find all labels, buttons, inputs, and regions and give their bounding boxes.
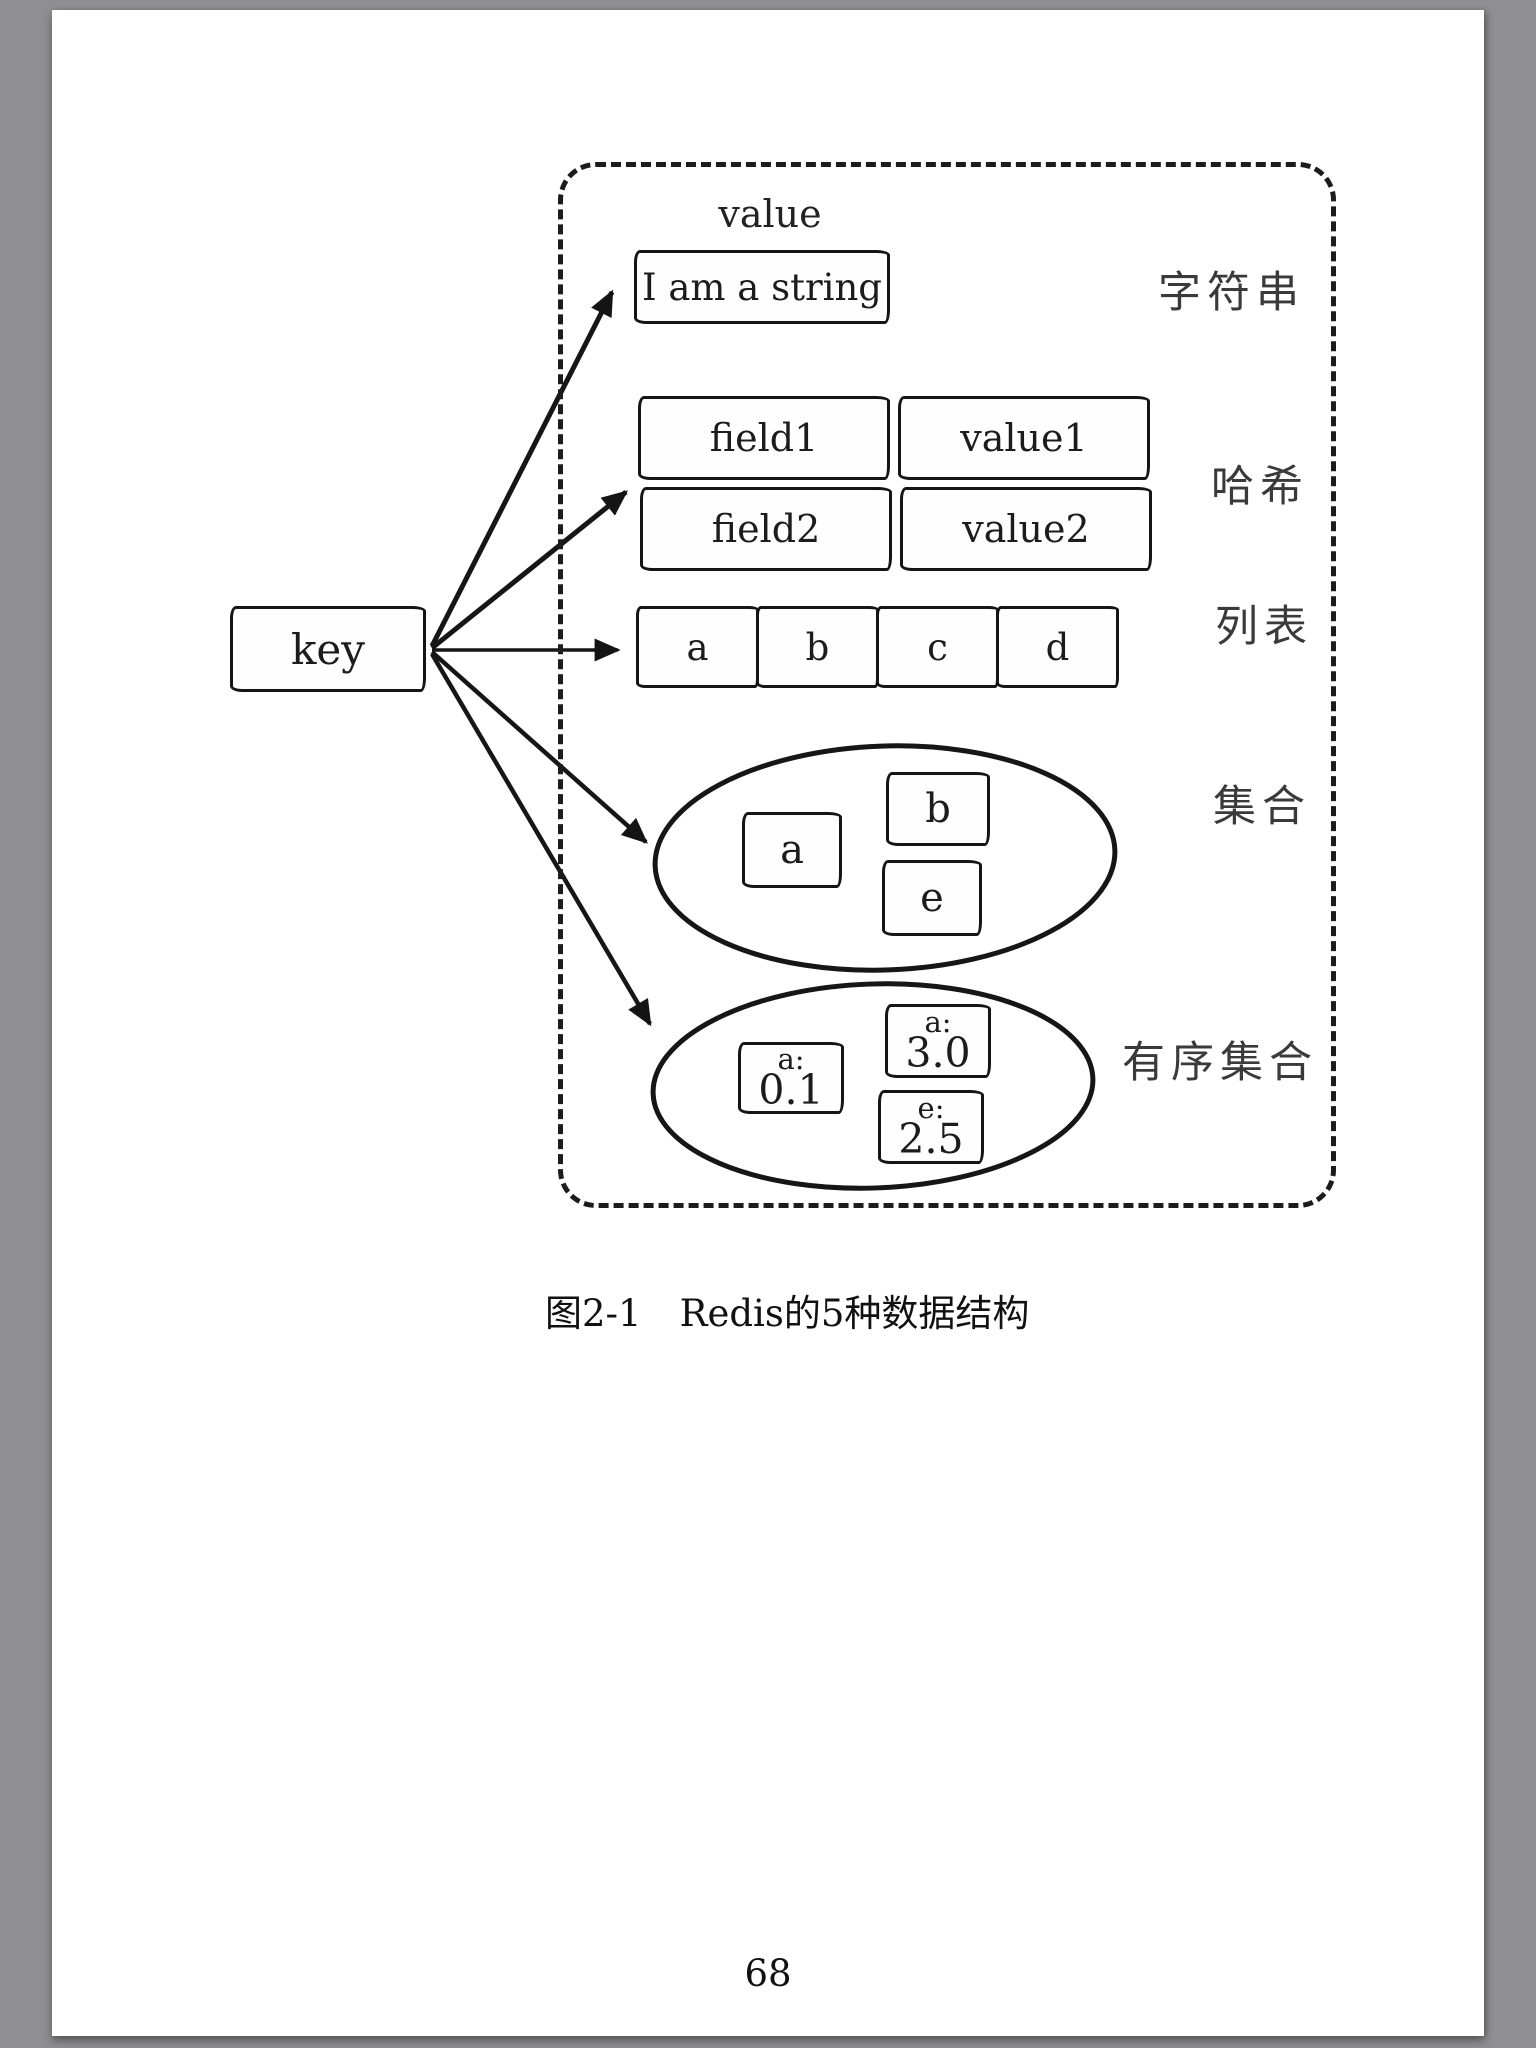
list-cell-b: b <box>756 606 879 688</box>
zset-member-a30-box: a: 3.0 <box>885 1004 991 1078</box>
list-cell-d: d <box>996 606 1119 688</box>
zset-member-a01-box: a: 0.1 <box>738 1042 844 1114</box>
hash-value2-box: value2 <box>900 487 1152 571</box>
label-string-type: 字符串 <box>1158 258 1305 320</box>
page-number: 68 <box>0 1952 1536 1995</box>
set-member-b-box: b <box>886 772 990 846</box>
label-set-type: 集合 <box>1213 772 1311 834</box>
figure-caption-number: 图2-1 <box>545 1292 642 1335</box>
reader-viewport: value key I am a string field1 value1 fi… <box>0 0 1536 2048</box>
zset-score-label: 2.5 <box>898 1121 963 1159</box>
hash-value1-box: value1 <box>898 396 1150 480</box>
label-sorted-set-type: 有序集合 <box>1122 1028 1318 1090</box>
figure-caption: 图2-1Redis的5种数据结构 <box>545 1283 1029 1337</box>
label-list-type: 列表 <box>1215 592 1313 654</box>
set-member-a-box: a <box>742 812 842 888</box>
list-cell-a: a <box>636 606 759 688</box>
zset-score-label: 0.1 <box>758 1072 823 1110</box>
set-member-e-box: e <box>882 860 982 936</box>
value-label: value <box>640 192 900 236</box>
string-value-box: I am a string <box>634 250 890 324</box>
hash-field2-box: field2 <box>640 487 892 571</box>
zset-score-label: 3.0 <box>905 1035 970 1073</box>
hash-field1-box: field1 <box>638 396 890 480</box>
list-cell-c: c <box>876 606 999 688</box>
key-box: key <box>230 606 426 692</box>
list-cells-row: a b c d <box>636 606 1119 688</box>
figure-caption-title: Redis的5种数据结构 <box>680 1292 1030 1335</box>
label-hash-type: 哈希 <box>1211 452 1309 514</box>
zset-member-e25-box: e: 2.5 <box>878 1090 984 1164</box>
